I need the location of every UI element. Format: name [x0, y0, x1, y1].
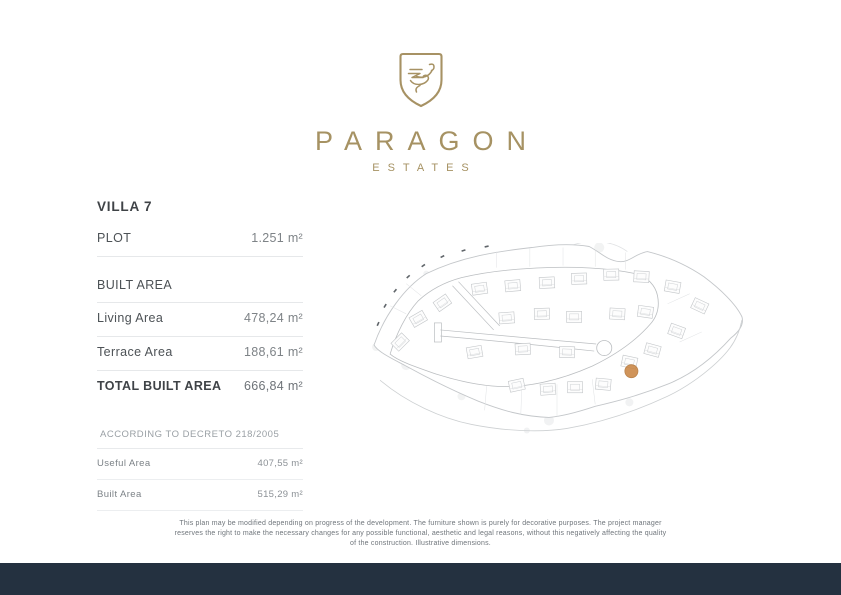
total-built-area-value: 666,84 m² — [244, 379, 303, 393]
plot-value: 1.251 m² — [251, 231, 303, 245]
living-area-label: Living Area — [97, 311, 163, 325]
built-area-value: 515,29 m² — [258, 489, 303, 500]
disclaimer-text: This plan may be modified depending on p… — [175, 519, 667, 549]
terrace-area-row: Terrace Area 188,61 m² — [97, 337, 303, 371]
useful-area-row: Useful Area 407,55 m² — [97, 449, 303, 480]
terrace-area-label: Terrace Area — [97, 345, 173, 359]
useful-area-value: 407,55 m² — [258, 458, 303, 469]
brand-subtitle: ESTATES — [0, 162, 841, 174]
living-area-row: Living Area 478,24 m² — [97, 303, 303, 337]
villa-7-marker — [625, 365, 638, 378]
total-built-area-label: TOTAL BUILT AREA — [97, 379, 221, 393]
useful-area-label: Useful Area — [97, 458, 151, 469]
site-boundary — [374, 245, 742, 418]
site-plan-map — [366, 243, 748, 439]
plot-label: PLOT — [97, 231, 131, 245]
villa-title: VILLA 7 — [97, 199, 303, 214]
total-built-area-row: TOTAL BUILT AREA 666,84 m² — [97, 371, 303, 404]
brochure-page: PARAGON ESTATES VILLA 7 PLOT 1.251 m² BU… — [0, 0, 841, 595]
brand-header: PARAGON ESTATES — [0, 52, 841, 174]
paragon-crest-shield-icon — [396, 52, 446, 108]
decreto-heading: ACCORDING TO DECRETO 218/2005 — [97, 424, 303, 449]
living-area-value: 478,24 m² — [244, 311, 303, 325]
villa-spec-panel: VILLA 7 PLOT 1.251 m² BUILT AREA Living … — [97, 199, 303, 511]
terrace-area-value: 188,61 m² — [244, 345, 303, 359]
footer-bar — [0, 563, 841, 595]
brand-name: PARAGON — [0, 126, 841, 157]
built-area-heading: BUILT AREA — [97, 269, 303, 303]
plot-row: PLOT 1.251 m² — [97, 223, 303, 257]
built-area-row: Built Area 515,29 m² — [97, 480, 303, 511]
built-area-label: Built Area — [97, 489, 142, 500]
